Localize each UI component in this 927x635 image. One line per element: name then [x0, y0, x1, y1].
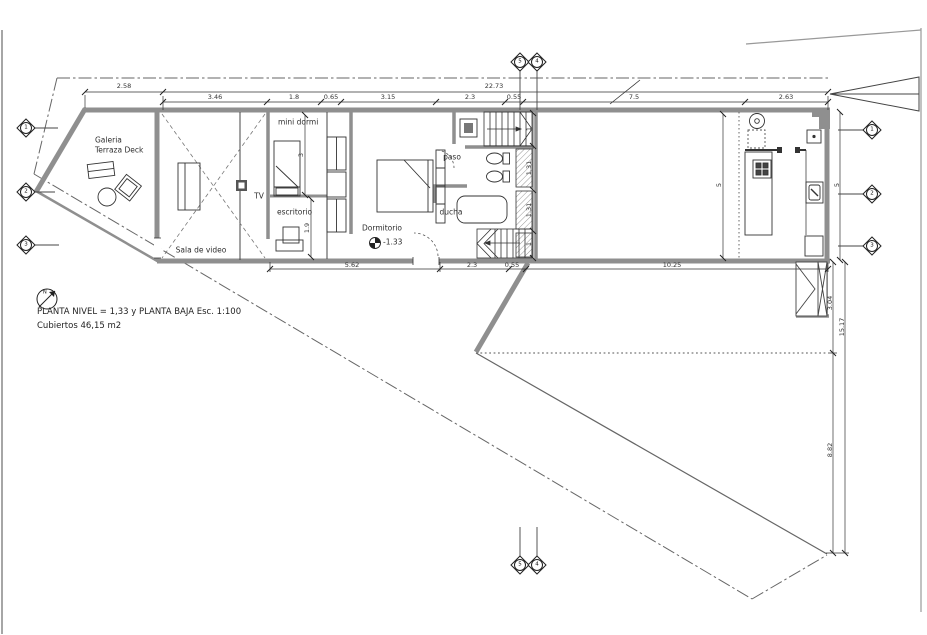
dim-label: 1.8 [289, 94, 299, 101]
shower-tray [457, 196, 507, 223]
grid-axis-label: 2 [24, 189, 28, 195]
grid-axis-label: 2 [870, 191, 874, 197]
dim-label: 1 [526, 242, 533, 246]
dim-label: 2.58 [117, 83, 131, 90]
grid-axis-label: 1 [24, 125, 28, 131]
dim-label: 3 [298, 153, 305, 157]
grid-axis-label: 3 [24, 242, 28, 248]
dim-label: 0.55 [505, 262, 519, 269]
grid-axis-label: 3 [870, 243, 874, 249]
north-letter: N [43, 291, 47, 296]
dim-label: 5 [834, 183, 841, 187]
grid-axis-label: 5 [518, 59, 522, 65]
level-value-label: -1.33 [383, 238, 402, 246]
toilet [487, 171, 503, 182]
room-label-sala-de-video: Sala de video [176, 246, 227, 254]
dim-label: 1.9 [304, 223, 311, 233]
cabinet [805, 236, 823, 256]
dim-label: 5 [716, 183, 723, 187]
dim-label: 5.62 [345, 262, 359, 269]
dim-label: 1.31 [526, 203, 533, 217]
furniture-galeria [87, 161, 141, 206]
room-label-terraza: Terraza Deck [95, 146, 143, 154]
grid-axis-label: 4 [535, 59, 539, 65]
dim-label: 3.46 [208, 94, 222, 101]
furniture-sala [178, 163, 247, 210]
drawing-area-note: Cubiertos 46,15 m2 [37, 322, 121, 331]
dim-label: 2.3 [467, 262, 477, 269]
grid-axis-label: 5 [518, 562, 522, 568]
room-label-ducha: ducha [440, 208, 463, 216]
kitchen-fixtures [739, 112, 823, 260]
dim-label: 10.25 [663, 262, 682, 269]
level-marker-icon [370, 238, 381, 249]
dim-label: 0.65 [324, 94, 338, 101]
kitchen-corner-wall [812, 108, 830, 129]
kitchen-sink [750, 114, 765, 129]
dim-label: 3.15 [381, 94, 395, 101]
furniture-mini-dormi [274, 141, 300, 196]
dimension-ticks [82, 89, 848, 556]
toilet [487, 153, 503, 164]
room-label-dormitorio: Dormitorio [362, 224, 402, 232]
grid-axis-label: 1 [870, 127, 874, 133]
bathroom-fixtures [457, 119, 532, 257]
room-label-galeria: Galeria [95, 136, 122, 144]
dim-label: 22.73 [485, 83, 504, 90]
floor-plan-canvas: 2.58 22.73 3.46 1.8 0.65 3.15 2.3 0.55 7… [0, 0, 927, 635]
stairs-exterior [796, 262, 827, 316]
room-label-escritorio: escritorio [277, 208, 312, 216]
dim-label: 3.04 [827, 296, 834, 310]
dim-label: 15.17 [839, 318, 846, 337]
grid-axis-label: 4 [535, 562, 539, 568]
closets [327, 137, 346, 232]
room-label-tv: TV [254, 192, 264, 200]
dim-label: 2.3 [465, 94, 475, 101]
dim-label: 1.31 [526, 161, 533, 175]
dim-label: 1 [526, 127, 533, 131]
roof-arrow-marker [830, 77, 919, 111]
dim-label: 7.5 [629, 94, 639, 101]
dim-label: 8.82 [827, 443, 834, 457]
room-label-paso: paso [443, 153, 461, 161]
furniture-escritorio [276, 227, 303, 251]
sala-cross-lines [162, 114, 265, 258]
room-label-mini-dormi: mini dormi [278, 118, 318, 126]
dim-label: 0.55 [507, 94, 521, 101]
drawing-title: PLANTA NIVEL = 1,33 y PLANTA BAJA Esc. 1… [37, 308, 241, 317]
dim-label: 2.63 [779, 94, 793, 101]
